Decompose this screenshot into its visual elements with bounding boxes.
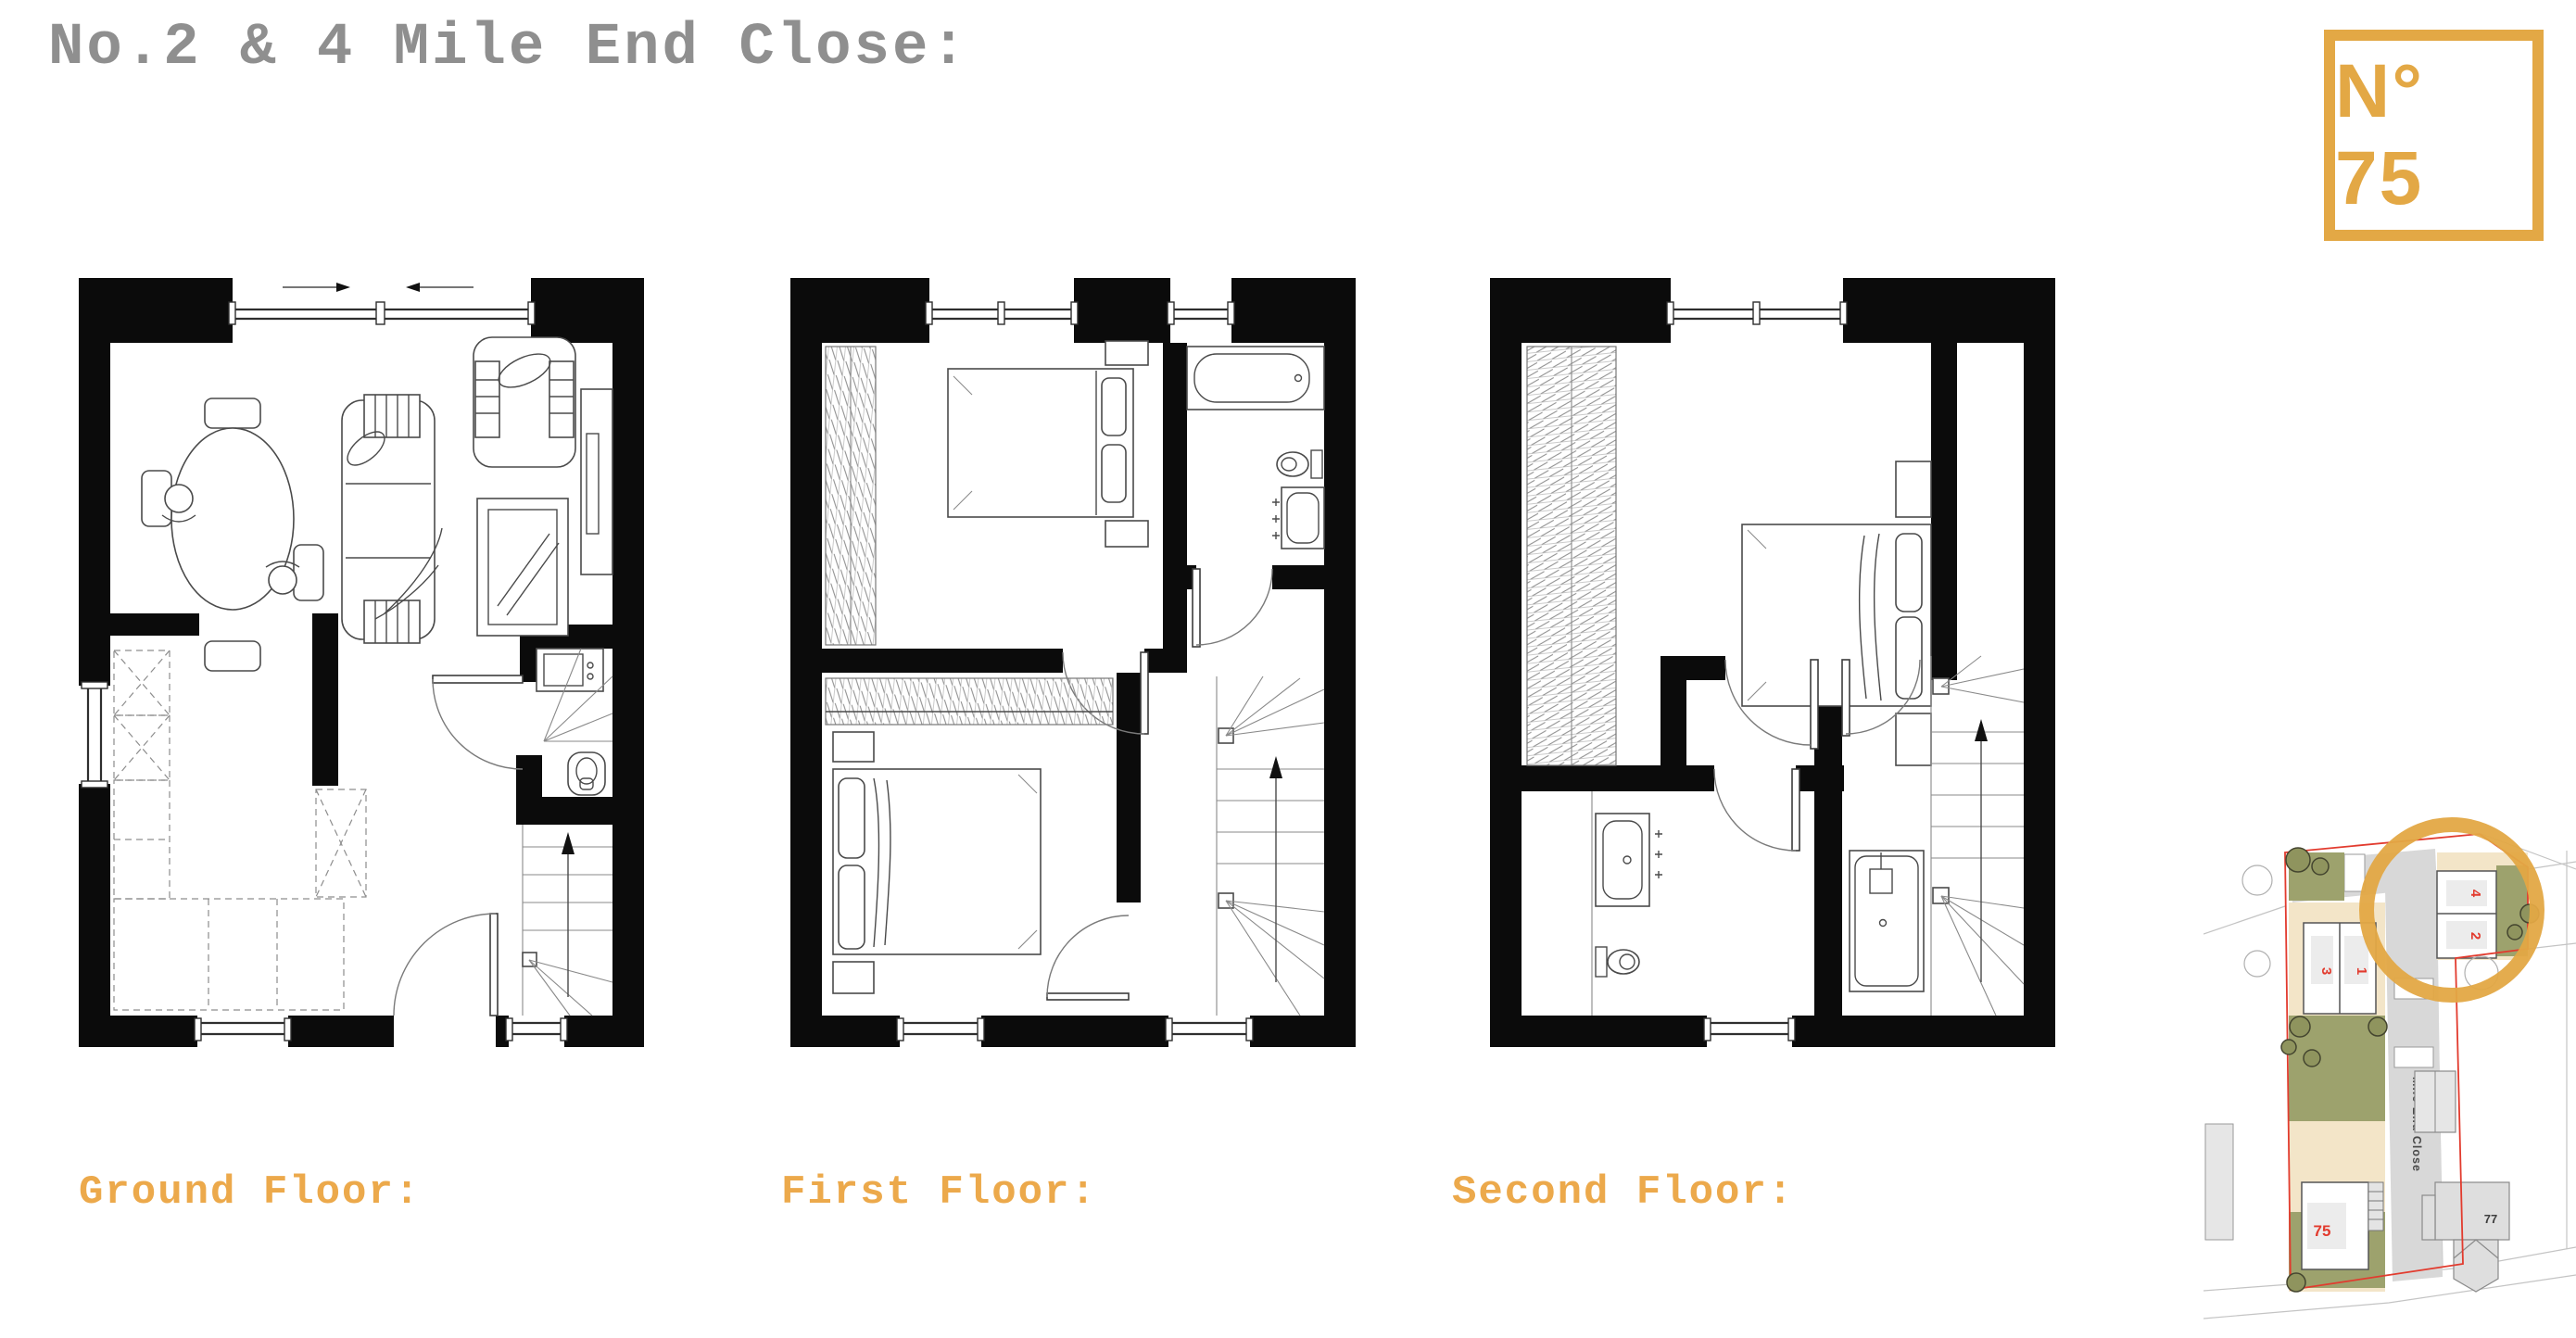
ground-floor-label: Ground Floor: — [79, 1169, 421, 1216]
first-floor-plan — [781, 250, 1365, 1066]
site-location-plan: Mile End Close 4 2 3 1 — [2203, 814, 2576, 1338]
patio-sliding-door — [229, 302, 535, 324]
ground-floor-drawing — [69, 250, 653, 1066]
sink — [1596, 814, 1662, 906]
plot-1-number: 1 — [2354, 967, 2369, 975]
bottom-window — [1704, 1018, 1795, 1041]
shower-room — [1850, 851, 1924, 991]
sink — [537, 649, 603, 691]
stairs-up-arrow — [1269, 756, 1282, 982]
plot-4-2-house: 4 2 — [2437, 871, 2496, 958]
logo-label: N° 75 — [2335, 48, 2532, 222]
bedroom2-door — [1047, 915, 1129, 1000]
tv-unit — [581, 389, 612, 574]
logo-n75: N° 75 — [2324, 30, 2544, 241]
bathroom-door — [1193, 569, 1272, 647]
armchair — [474, 337, 575, 467]
plot-3-number: 3 — [2318, 967, 2334, 975]
door-swing-arrows — [283, 283, 474, 292]
interior-walls — [110, 613, 612, 825]
bathroom-door — [1714, 769, 1799, 851]
mirror — [477, 499, 568, 636]
staircase — [1217, 676, 1324, 1016]
sink — [1272, 487, 1324, 549]
master-bedroom — [1527, 347, 1931, 765]
ground-floor-plan — [69, 250, 653, 1066]
first-floor-label: First Floor: — [781, 1169, 1097, 1216]
double-bed — [1742, 524, 1931, 706]
house-75-number: 75 — [2314, 1222, 2331, 1240]
plot-2-number: 2 — [2468, 932, 2483, 940]
plot-4-number: 4 — [2468, 890, 2483, 898]
toilet — [1596, 947, 1639, 977]
top-window — [1667, 302, 1847, 324]
cloakroom — [537, 649, 612, 795]
bathroom — [1187, 347, 1324, 647]
bathroom — [1592, 791, 1662, 1016]
sofa — [342, 395, 442, 643]
second-floor-label: Second Floor: — [1452, 1169, 1794, 1216]
site-plan-drawing: Mile End Close 4 2 3 1 — [2203, 814, 2576, 1338]
toilet — [1277, 450, 1322, 478]
stairs-up-arrow — [562, 832, 575, 997]
bedroom1 — [826, 341, 1148, 645]
wc-door — [433, 675, 523, 769]
staircase — [523, 825, 612, 1016]
left-window — [82, 682, 107, 788]
bedroom2 — [826, 678, 1113, 993]
double-bed — [948, 369, 1133, 517]
second-floor-drawing — [1481, 250, 2065, 1066]
page-title: No.2 & 4 Mile End Close: — [48, 15, 969, 82]
brochure-page: No.2 & 4 Mile End Close: N° 75 — [0, 0, 2576, 1338]
entrance-door — [394, 914, 498, 1016]
double-bed — [833, 769, 1041, 954]
bath — [1187, 347, 1324, 410]
second-floor-plan — [1481, 250, 2065, 1066]
staircase — [1931, 656, 2024, 1016]
house-77-number: 77 — [2484, 1212, 2497, 1226]
first-floor-drawing — [781, 250, 1365, 1066]
toilet — [568, 752, 605, 795]
